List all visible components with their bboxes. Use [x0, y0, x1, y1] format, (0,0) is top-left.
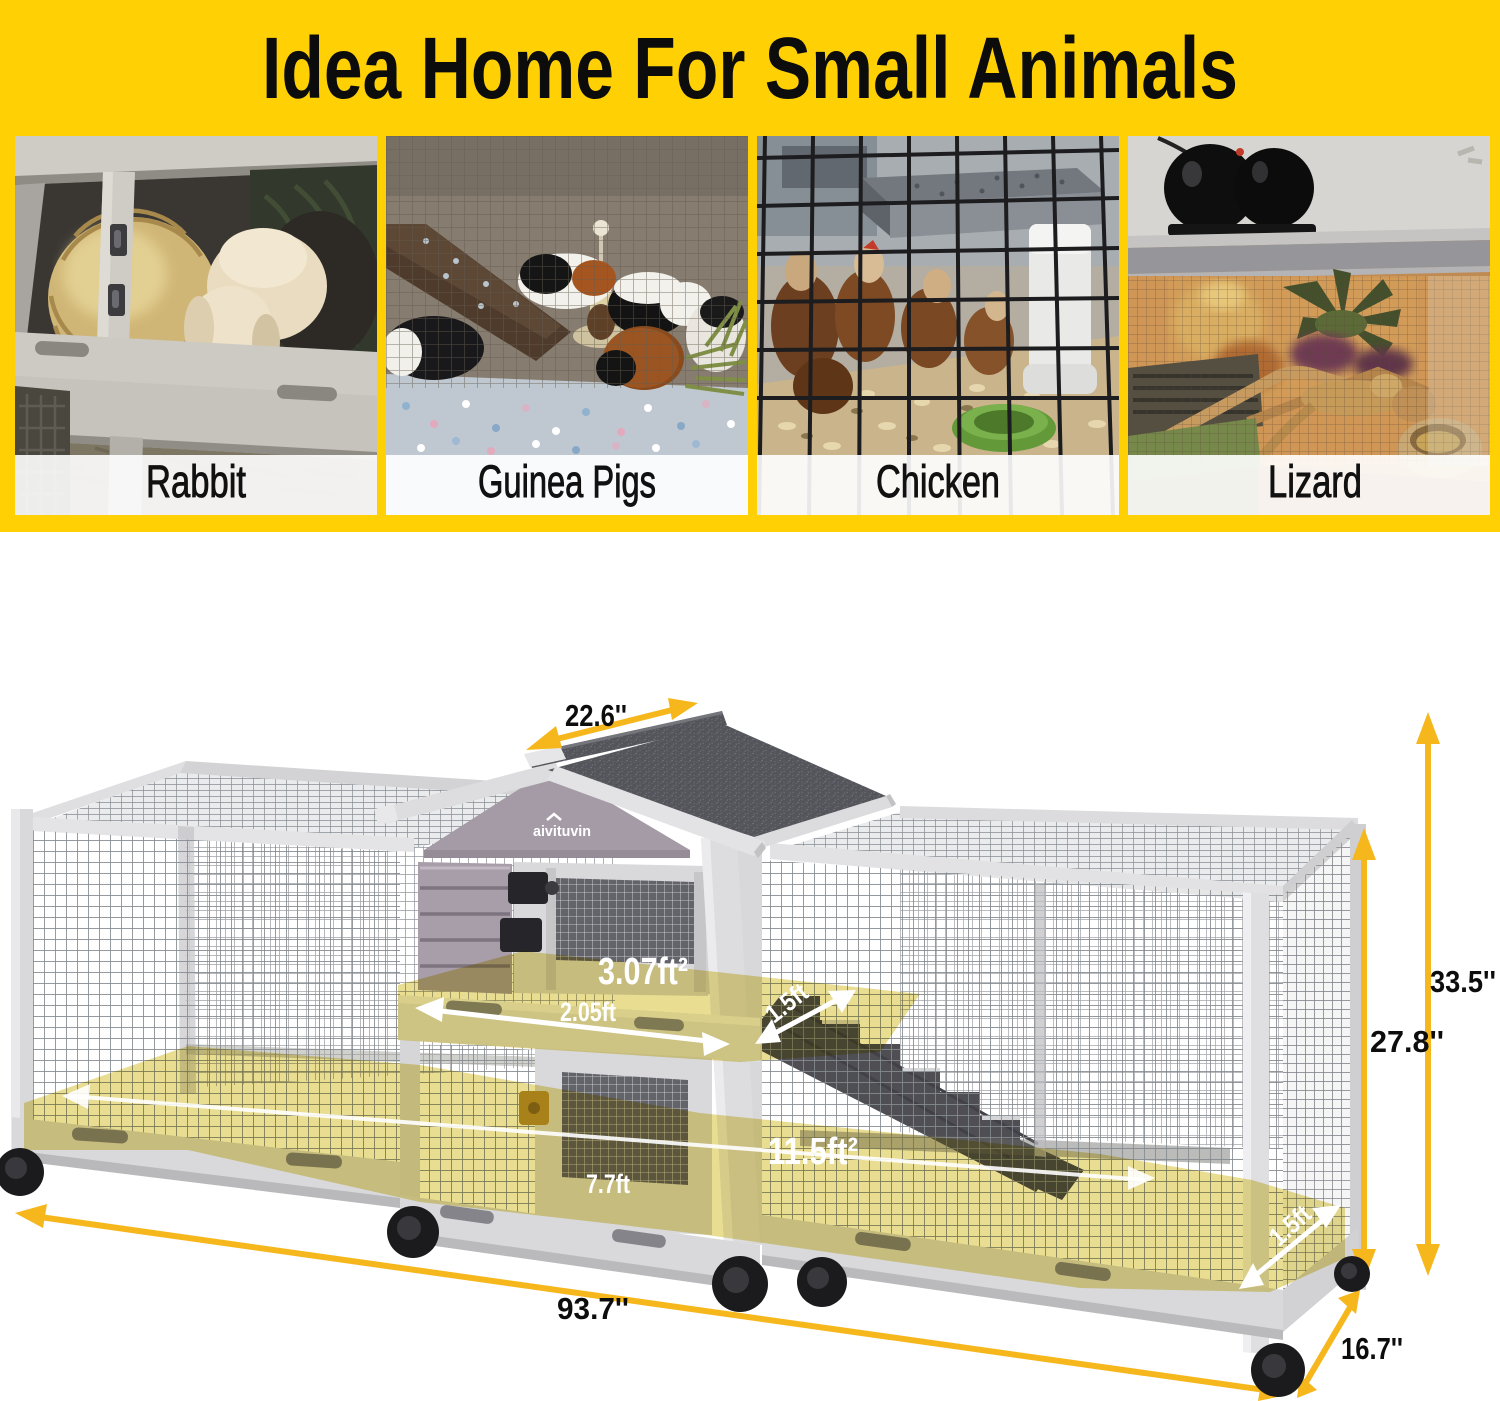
svg-text:93.7'': 93.7'' — [557, 1291, 629, 1326]
svg-text:16.7'': 16.7'' — [1341, 1331, 1403, 1366]
svg-text:Guinea Pigs: Guinea Pigs — [478, 456, 656, 507]
svg-text:Lizard: Lizard — [1268, 456, 1362, 507]
svg-text:Chicken: Chicken — [876, 456, 1000, 507]
svg-text:22.6'': 22.6'' — [565, 698, 627, 733]
svg-text:Rabbit: Rabbit — [146, 456, 246, 507]
svg-text:7.7ft: 7.7ft — [586, 1169, 630, 1199]
svg-text:aivituvin: aivituvin — [533, 823, 591, 840]
svg-text:33.5'': 33.5'' — [1430, 964, 1496, 999]
svg-text:27.8'': 27.8'' — [1370, 1024, 1444, 1059]
svg-text:2.05ft: 2.05ft — [560, 997, 616, 1027]
svg-text:3.07ft²: 3.07ft² — [598, 951, 688, 993]
